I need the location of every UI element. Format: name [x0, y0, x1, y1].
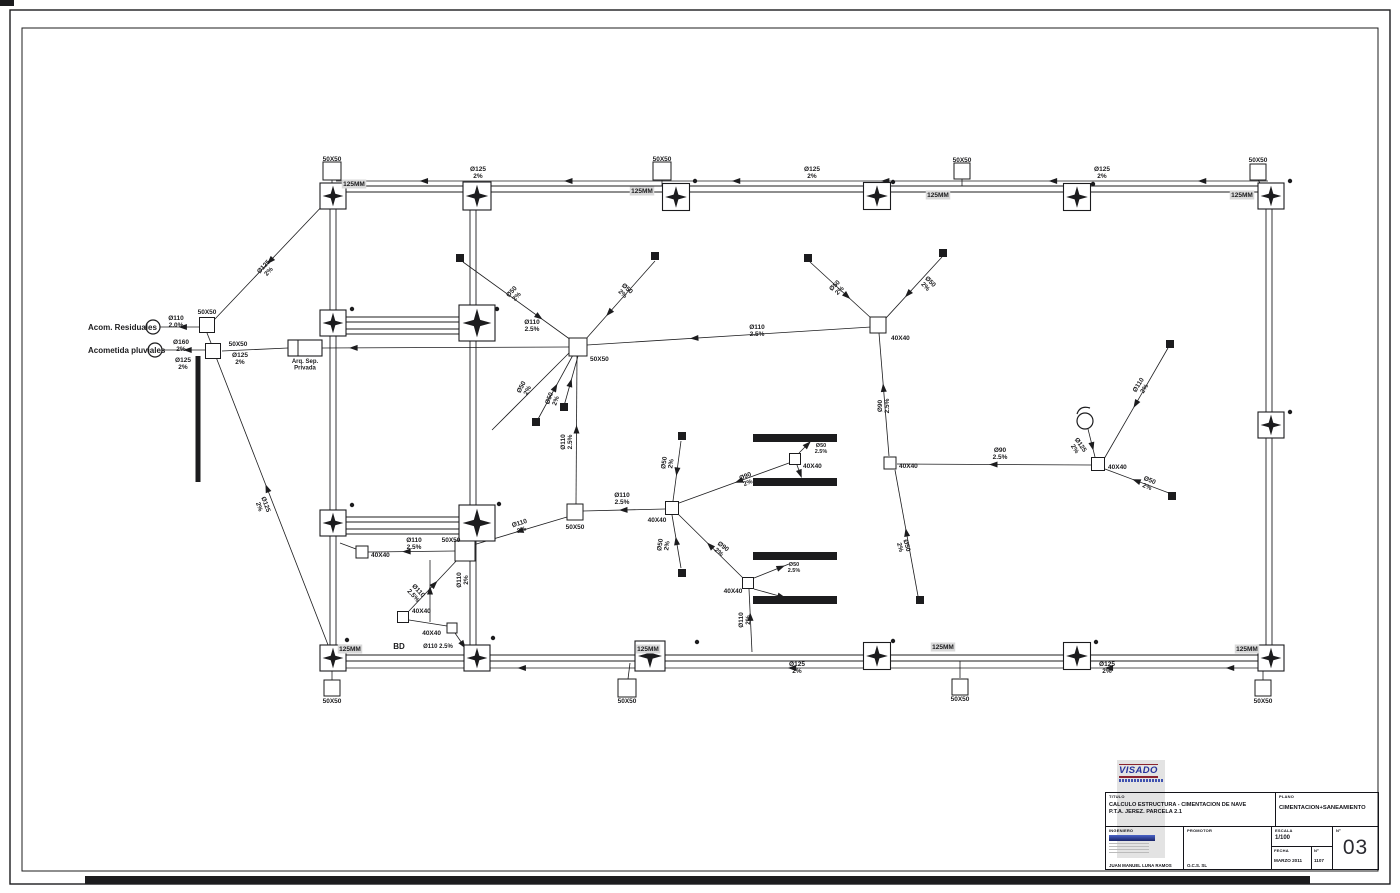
promotor-label: PROMOTOR: [1187, 828, 1268, 833]
trench-bar: [753, 478, 837, 486]
pipe-label: Ø110 2.5%: [423, 644, 453, 650]
manhole-box: [954, 163, 970, 179]
manhole-label: 40X40: [648, 517, 667, 524]
fecha-label: FECHA: [1274, 848, 1309, 853]
manhole-box: [323, 162, 341, 180]
expediente-label: Nº: [1314, 848, 1330, 853]
manhole-label: 50X50: [618, 698, 637, 705]
hoja-label: Nº: [1336, 828, 1341, 833]
column-dot: [1288, 410, 1292, 414]
manhole-label: 50X50: [953, 157, 972, 164]
autor-label: INGENIERO: [1109, 828, 1180, 833]
pipe-label: Ø1102.5%: [560, 434, 574, 450]
downpipe-marker: [1166, 340, 1174, 348]
title-block-row1: TITULO CALCULO ESTRUCTURA - CIMENTACION …: [1106, 793, 1378, 827]
manhole-box: [447, 623, 457, 633]
promotor-cell: PROMOTOR O.C.S. SL: [1184, 827, 1272, 869]
plano-value: CIMENTACION+SANEAMIENTO: [1279, 805, 1375, 811]
manhole-label: 50X50: [653, 156, 672, 163]
downpipe-marker: [678, 432, 686, 440]
column-dot: [891, 180, 895, 184]
manhole-box: [666, 502, 679, 515]
inlet-circle: [1077, 413, 1093, 429]
pipe-label: BD: [393, 642, 405, 651]
autor-cell: INGENIERO JUAN MANUEL LUNA RAMOS: [1106, 827, 1184, 869]
downpipe-marker: [678, 569, 686, 577]
manhole-label: 50X50: [951, 696, 970, 703]
title-block: TITULO CALCULO ESTRUCTURA - CIMENTACION …: [1105, 792, 1379, 870]
manhole-label: 50X50: [442, 537, 461, 544]
downpipe-marker: [651, 252, 659, 260]
manhole-label: 50X50: [1249, 157, 1268, 164]
promotor-value: O.C.S. SL: [1187, 863, 1207, 868]
pipe-label: Ø1102.5%: [749, 324, 765, 338]
pipe-label: Ø902.5%: [993, 447, 1008, 461]
manhole-label: 50X50: [566, 524, 585, 531]
pipe-label: Ø1102.5%: [614, 492, 630, 506]
downpipe-marker: [560, 403, 568, 411]
manhole-box: [569, 338, 587, 356]
titulo-line2: P.T.A. JEREZ. PARCELA 2.1: [1109, 809, 1272, 816]
pipe-label: 125MM: [343, 181, 365, 188]
pipe-label: 125MM: [637, 646, 659, 653]
escala-cell: ESCALA 1/100: [1272, 827, 1332, 847]
column-dot: [497, 502, 501, 506]
pipe-label: 125MM: [339, 646, 361, 653]
visado-text: VISADO: [1119, 764, 1158, 778]
manhole-label: 40X40: [724, 588, 743, 595]
downpipe-marker: [456, 254, 464, 262]
manhole-box: [200, 318, 215, 333]
trench-bar: [753, 434, 837, 442]
manhole-box: [324, 680, 340, 696]
bottom-strip: [85, 876, 1310, 884]
manhole-box: [1255, 680, 1271, 696]
plano-label: PLANO: [1279, 794, 1375, 799]
manhole-label: 40X40: [422, 630, 441, 637]
manhole-label: 50X50: [229, 341, 248, 348]
manhole-label: 50X50: [323, 698, 342, 705]
manhole-box: [790, 454, 801, 465]
pipe-label: 125MM: [927, 192, 949, 199]
manhole-box: [743, 578, 754, 589]
downpipe-marker: [1168, 492, 1176, 500]
visado-subline: [1119, 779, 1163, 782]
manhole-box: [952, 679, 968, 695]
manhole-box: [206, 344, 221, 359]
pipe-label: Ø902.5%: [877, 398, 891, 413]
pipe-label: Acom. Residuales: [88, 323, 157, 332]
manhole-label: 40X40: [1108, 464, 1127, 471]
manhole-label: 50X50: [198, 309, 217, 316]
manhole-box: [1092, 458, 1105, 471]
manhole-label: 40X40: [371, 552, 390, 559]
column-dot: [350, 503, 354, 507]
pipe-label: Acometida pluviales: [88, 346, 166, 355]
manhole-box: [884, 457, 896, 469]
manhole-box: [870, 317, 886, 333]
expediente-value: 1107: [1314, 858, 1330, 863]
fecha-value: MARZO 2011: [1274, 858, 1309, 863]
manhole-box: [653, 162, 671, 180]
column-dot: [350, 307, 354, 311]
sheet-number: 03: [1343, 836, 1368, 860]
title-cell: TITULO CALCULO ESTRUCTURA - CIMENTACION …: [1106, 793, 1276, 826]
trench-bar: [753, 552, 837, 560]
pipe-label: 125MM: [1236, 646, 1258, 653]
column-dot: [495, 307, 499, 311]
pipe-label: Ø1102.5%: [524, 319, 540, 333]
manhole-box: [1250, 164, 1266, 180]
pipe-label: Ø1102.0%: [168, 315, 184, 329]
column-dot: [345, 638, 349, 642]
sheet-number-cell: Nº 03: [1333, 827, 1378, 869]
downpipe-marker: [939, 249, 947, 257]
column-dot: [1091, 182, 1095, 186]
separator-box: [288, 340, 322, 356]
pipe-label: Ø502.5%: [788, 562, 801, 574]
column-dot: [695, 640, 699, 644]
manhole-label: 40X40: [412, 608, 431, 615]
pipe-label: 125MM: [932, 644, 954, 651]
paper-background: [0, 0, 1400, 893]
autor-value: JUAN MANUEL LUNA RAMOS: [1109, 863, 1172, 868]
manhole-box: [618, 679, 636, 697]
column-dot: [1094, 640, 1098, 644]
titulo-line1: CALCULO ESTRUCTURA - CIMENTACION DE NAVE: [1109, 802, 1272, 809]
escala-fecha-cell: ESCALA 1/100 FECHA MARZO 2011 Nº 1107: [1272, 827, 1333, 869]
column-dot: [491, 636, 495, 640]
plano-cell: PLANO CIMENTACION+SANEAMIENTO: [1276, 793, 1378, 826]
plan-svg: 50X5050X5050X5050X5050X5050X5050X5050X50…: [0, 0, 1400, 893]
corner-speck: [0, 0, 14, 6]
downpipe-marker: [532, 418, 540, 426]
manhole-box: [356, 546, 368, 558]
manhole-label: 50X50: [323, 156, 342, 163]
downpipe-marker: [916, 596, 924, 604]
manhole-label: 50X50: [1254, 698, 1273, 705]
manhole-label: 40X40: [891, 335, 910, 342]
titulo-label: TITULO: [1109, 794, 1272, 799]
pipe-label: 125MM: [631, 188, 653, 195]
escala-value: 1/100: [1275, 835, 1329, 841]
colegio-logo: [1109, 835, 1155, 841]
downpipe-marker: [804, 254, 812, 262]
logo-fineprint: [1109, 843, 1149, 853]
pipe-label: Ø1102.5%: [406, 537, 422, 551]
pipe-label: Arq. Sep.Privada: [292, 359, 319, 372]
title-block-row2: INGENIERO JUAN MANUEL LUNA RAMOS PROMOTO…: [1106, 827, 1378, 869]
manhole-label: 50X50: [590, 356, 609, 363]
fecha-cell: FECHA MARZO 2011: [1272, 847, 1312, 869]
expediente-cell: Nº 1107: [1312, 847, 1332, 869]
manhole-box: [567, 504, 583, 520]
drawing-sheet: 50X5050X5050X5050X5050X5050X5050X5050X50…: [0, 0, 1400, 893]
column-dot: [1288, 179, 1292, 183]
manhole-label: 40X40: [899, 463, 918, 470]
escala-label: ESCALA: [1275, 828, 1329, 833]
manhole-label: 40X40: [803, 463, 822, 470]
pipe-label: Ø502.5%: [815, 443, 828, 455]
column-dot: [891, 639, 895, 643]
pipe-label: 125MM: [1231, 192, 1253, 199]
trench-bar: [753, 596, 837, 604]
manhole-box: [455, 541, 475, 561]
column-dot: [693, 179, 697, 183]
manhole-box: [398, 612, 409, 623]
